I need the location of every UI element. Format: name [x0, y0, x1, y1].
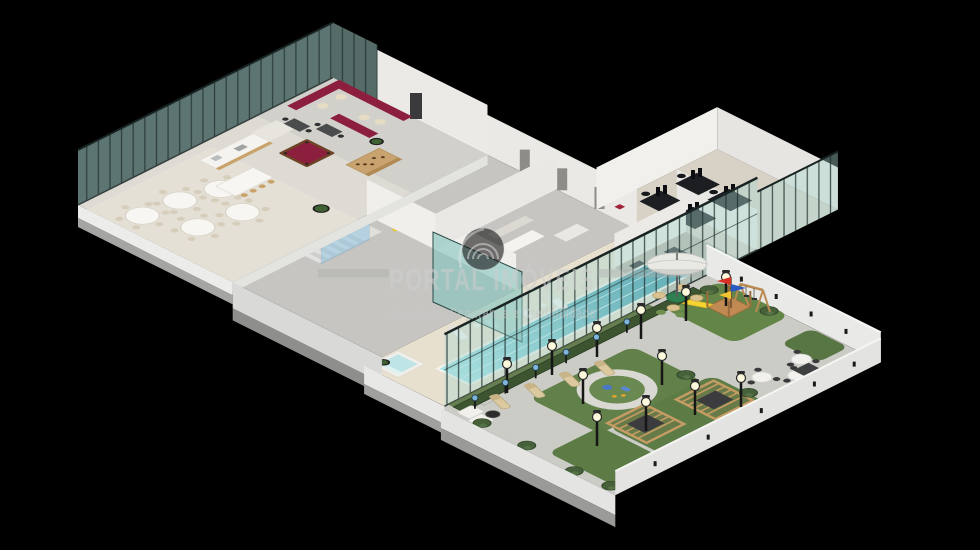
swing-seat [752, 298, 757, 300]
watermark-tagline: Seriedade, Segurança e Credibilidade [388, 306, 596, 322]
watermark-line-left [318, 269, 389, 278]
wall-tv-panel [410, 93, 422, 119]
watermark-title: PORTAL IMÓVEIS [389, 261, 595, 297]
door [557, 168, 567, 190]
swing-seat [744, 295, 749, 297]
watermark-line-right [598, 269, 702, 278]
floorplan-render-page: PORTAL IMÓVEIS Seriedade, Segurança e Cr… [0, 0, 980, 550]
isometric-floorplan: PORTAL IMÓVEIS Seriedade, Segurança e Cr… [0, 0, 980, 550]
